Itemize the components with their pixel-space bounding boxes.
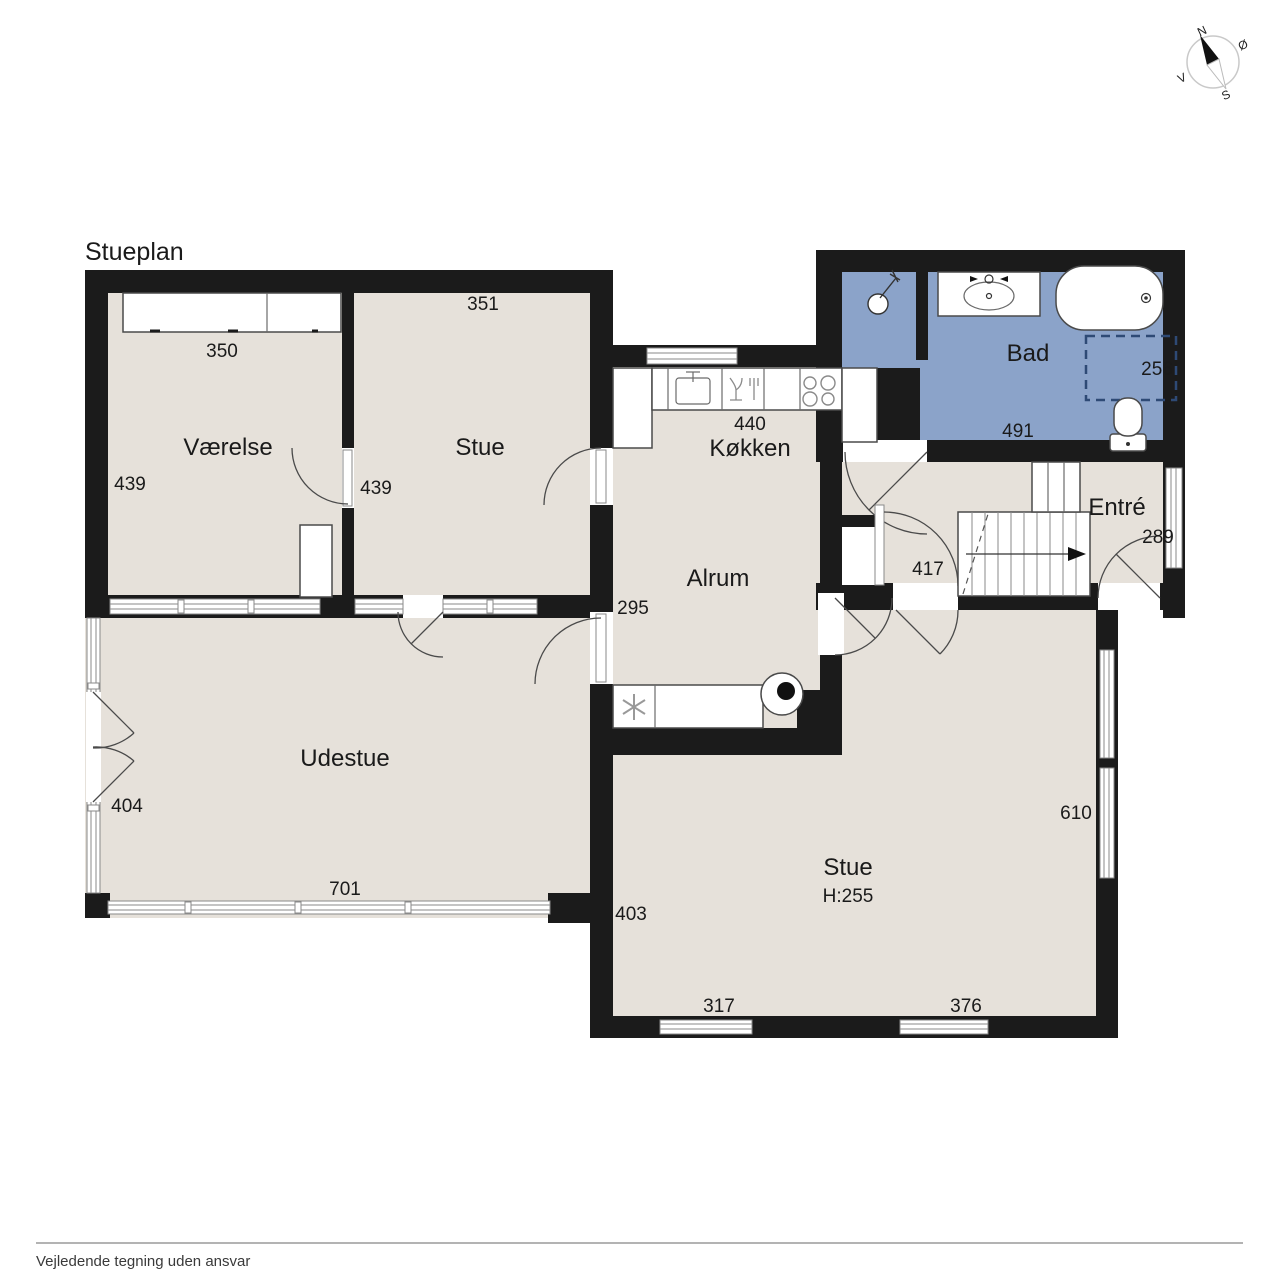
stue-bottom-window-left: [660, 1020, 752, 1034]
room-label-alrum: Alrum: [687, 565, 750, 592]
compass-s: S: [1219, 87, 1232, 103]
dim-350: 350: [206, 341, 238, 362]
compass-needle-south: [1207, 59, 1226, 89]
room-label-stue-top: Stue: [455, 434, 504, 461]
room-label-stue-bottom: Stue: [823, 854, 872, 881]
hall-closet: [1032, 462, 1080, 512]
wardrobe: [123, 293, 341, 332]
entre-window: [1166, 468, 1182, 568]
compass-v: V: [1175, 70, 1188, 86]
kitchen-window: [647, 348, 737, 364]
room-label-entre: Entré: [1088, 494, 1145, 521]
alrum-counter: [613, 685, 763, 728]
dim-439-left: 439: [114, 474, 146, 495]
dim-289: 289: [1142, 527, 1174, 548]
stue-bottom-window-right: [900, 1020, 988, 1034]
dim-317: 317: [703, 996, 735, 1017]
window-band-top2: [355, 599, 403, 614]
dim-295: 295: [617, 598, 649, 619]
room-label-udestue: Udestue: [300, 745, 389, 772]
dim-491: 491: [1002, 421, 1034, 442]
udestue-bottom-windows: [108, 901, 550, 914]
toilet: [1110, 398, 1146, 451]
compass-e: Ø: [1236, 37, 1250, 54]
dim-h255: H:255: [823, 886, 874, 907]
dim-403: 403: [615, 904, 647, 925]
footer: Vejledende tegning uden ansvar: [36, 1243, 1243, 1270]
dim-256: 256: [1141, 359, 1173, 380]
dim-440: 440: [734, 414, 766, 435]
dim-404: 404: [111, 796, 143, 817]
kitchen-tall-unit: [842, 368, 877, 442]
room-label-vaerelse: Værelse: [183, 434, 272, 461]
page-title: Stueplan: [85, 238, 184, 266]
dim-376: 376: [950, 996, 982, 1017]
footer-note: Vejledende tegning uden ansvar: [36, 1253, 250, 1270]
room-label-bad: Bad: [1007, 340, 1050, 367]
room-label-koekken: Køkken: [709, 435, 790, 462]
compass: N Ø S V: [1175, 23, 1250, 103]
window-band-top: [110, 599, 320, 614]
dim-701: 701: [329, 879, 361, 900]
dim-610: 610: [1060, 803, 1092, 824]
dim-351: 351: [467, 294, 499, 315]
dim-439-mid: 439: [360, 478, 392, 499]
bathtub: [1056, 266, 1163, 330]
window-band-top3: [443, 599, 537, 614]
wood-stove: [761, 673, 803, 715]
floorplan-svg: Stueplan Værelse 439 350 Stue 351 439 Kø…: [0, 0, 1280, 1280]
stairs: [958, 512, 1090, 596]
shelf-unit: [300, 525, 332, 597]
bathroom-vanity: [938, 272, 1040, 316]
dim-417: 417: [912, 559, 944, 580]
